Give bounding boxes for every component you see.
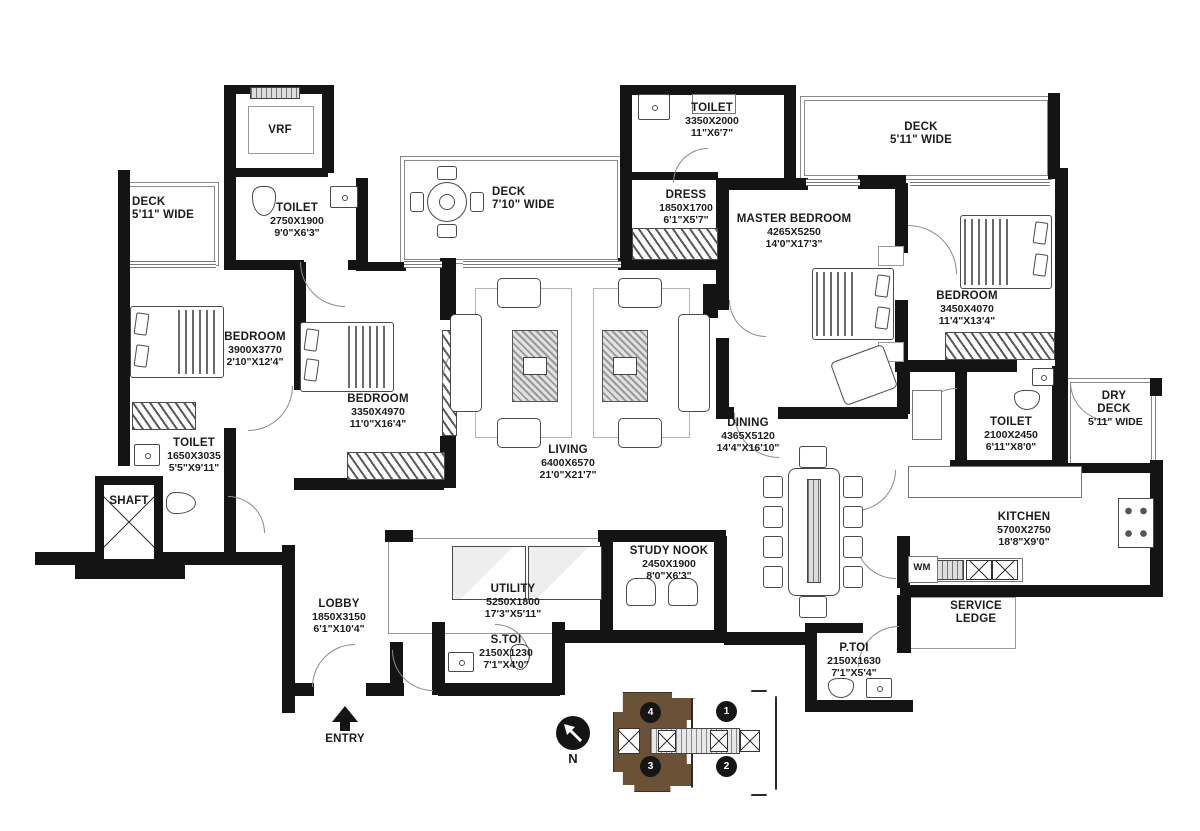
wall [620,85,632,267]
room-name: LIVING [540,444,597,457]
wall [784,85,796,180]
room-label-toilet-bottom-left: TOILET 1650X3035 5'5"X9'11" [167,437,221,474]
room-label-shaft: SHAFT [109,495,148,508]
armchair-icon [497,418,541,448]
room-label-study-nook: STUDY NOOK 2450X1900 8'0"X6'3" [630,545,708,582]
room-name: BEDROOM [224,331,285,344]
door-arc [729,300,766,337]
deck-left-area [122,182,219,266]
room-size: 17'3"X5'11" [485,608,541,620]
room-label-dining: DINING 4365X5120 14'4"X16'10" [717,417,780,454]
study-chair-icon [626,578,656,606]
room-size: 1850X3150 [312,611,366,623]
armchair-icon [618,278,662,308]
north-label: N [568,752,578,765]
wall [282,683,314,696]
wardrobe-icon [347,452,445,480]
room-size: 2'10"X12'4" [224,356,285,368]
bed-icon [960,215,1052,289]
nightstand [878,246,904,266]
room-name: SERVICE LEDGE [943,600,1009,626]
dining-chair-icon [763,476,783,498]
room-label-p-toi: P.TOI 2150X1630 7'1"X5'4" [827,642,881,679]
dining-chair-icon [843,536,863,558]
rug-icon [602,330,648,402]
bed-icon [130,306,224,378]
room-name: P.TOI [827,642,881,655]
wall [322,85,334,173]
room-label-wm: WM [913,561,930,574]
wall [714,536,727,642]
room-label-toilet-right: TOILET 2100X2450 6'11"X8'0" [984,416,1038,453]
room-name: UTILITY [485,583,541,596]
bed-icon [812,268,894,340]
room-name: DECK [132,196,194,209]
room-size: 1850X1700 [659,202,713,214]
room-size: 6'11"X8'0" [984,441,1038,453]
study-chair-icon [668,578,698,606]
north-arrow-icon [556,716,590,750]
sink-icon [638,94,670,120]
wall [805,623,863,633]
room-size: 3450X4070 [936,303,997,315]
deck-chair-icon [410,192,424,212]
entry-label: ENTRY [325,733,365,746]
toilet-icon [828,678,854,698]
north-text: N [568,752,578,765]
key-plan-unit-2: 2 [716,756,737,777]
sink-icon [1032,368,1054,386]
wall [118,170,130,466]
room-size: 5700X2750 [997,524,1051,536]
room-label-bedroom-left: BEDROOM 3900X3770 2'10"X12'4" [224,331,285,368]
armchair-icon [618,418,662,448]
room-name: BEDROOM [347,393,408,406]
wall [1052,366,1068,466]
unit-number: 4 [648,707,654,718]
room-size: 2450X1900 [630,558,708,570]
dining-chair-icon [843,566,863,588]
room-size: 21'0"X21'7" [540,469,597,481]
sofa-icon [678,314,710,412]
wall [598,530,726,542]
key-plan-lift-icon [740,730,760,752]
entry-arrow-icon [332,706,358,722]
dining-chair-icon [799,446,827,468]
sink-icon [448,652,474,672]
wardrobe-icon [945,332,1055,360]
door-arc [673,148,708,183]
wall [224,260,304,270]
deck-chair-icon [470,192,484,212]
wall [897,372,910,414]
key-plan-lift-icon [710,730,728,752]
wall [895,183,908,253]
toilet-icon [1014,390,1040,410]
room-size: 3900X3770 [224,344,285,356]
sink-icon [966,560,992,580]
room-size: 5'11" WIDE [890,134,952,147]
room-label-living: LIVING 6400X6570 21'0"X21'7" [540,444,597,481]
room-size: 5'11" WIDE [1088,416,1140,428]
sink-icon [992,560,1018,580]
wall [1150,378,1162,396]
room-size: 8'0"X6'3" [630,570,708,582]
door-arc [312,644,355,687]
bed-icon [300,322,394,392]
room-name: LOBBY [312,598,366,611]
dining-chair-icon [763,506,783,528]
room-label-toilet-top: TOILET 3350X2000 11"X6'7" [685,102,739,139]
key-plan-unit-3: 3 [640,756,661,777]
room-label-kitchen: KITCHEN 5700X2750 18'8"X9'0" [997,511,1051,548]
room-name: STUDY NOOK [630,545,708,558]
room-size: 4365X5120 [717,430,780,442]
room-size: 18'8"X9'0" [997,536,1051,548]
room-name: DECK [492,186,555,199]
key-plan: 4 1 3 2 [606,686,776,798]
shaft-box [95,476,163,568]
room-label-bedroom-mid: BEDROOM 3350X4970 11'0"X16'4" [347,393,408,430]
room-label-deck-right: DECK 5'11" WIDE [890,121,952,147]
room-name: DECK [890,121,952,134]
wall [224,85,236,270]
sink-icon [134,444,160,466]
room-size: 7'10" WIDE [492,199,555,212]
room-size: 9'0"X6'3" [270,227,324,239]
room-size: 11'0"X16'4" [347,418,408,430]
room-label-utility: UTILITY 5250X1800 17'3"X5'11" [485,583,541,620]
kitchen-counter [908,466,1082,498]
wall [724,632,816,645]
room-name: MASTER BEDROOM [737,213,852,226]
fridge-icon [912,390,942,440]
room-name: WM [913,561,930,574]
wall [895,360,1017,372]
wall [703,284,718,318]
room-size: 6'1"X10'4" [312,623,366,635]
room-name: DRY DECK [1088,390,1140,416]
door-arc [228,496,265,533]
wall [440,258,456,320]
window [910,179,1050,186]
room-size: 7'1"X4'0" [479,659,533,671]
door-arc [248,386,293,431]
sink-icon [330,186,358,208]
room-name: TOILET [270,202,324,215]
room-name: TOILET [984,416,1038,429]
dining-table-icon [788,468,840,596]
room-size: 11"X6'7" [685,127,739,139]
wall [805,623,817,707]
wall [438,683,560,696]
wall [716,338,729,418]
room-size: 2150X1230 [479,647,533,659]
room-name: S.TOI [479,634,533,647]
room-size: 4265X5250 [737,226,852,238]
room-size: 2100X2450 [984,429,1038,441]
room-size: 3350X4970 [347,406,408,418]
wall [565,630,727,643]
room-label-service-ledge: SERVICE LEDGE [943,600,1009,626]
room-size: 5'5"X9'11" [167,462,221,474]
wall [778,407,908,419]
window [463,261,621,268]
wall [897,595,911,653]
door-arc [908,225,957,274]
room-label-s-toi: S.TOI 2150X1230 7'1"X4'0" [479,634,533,671]
room-size: 2750X1900 [270,215,324,227]
toilet-icon [166,492,196,514]
wall [716,178,808,190]
vrf-grille-icon [250,87,300,99]
wall [232,168,328,177]
room-label-dress: DRESS 1850X1700 6'1"X5'7" [659,189,713,226]
unit-number: 3 [648,761,654,772]
room-label-vrf: VRF [268,124,292,137]
room-size: 6400X6570 [540,457,597,469]
room-name: TOILET [167,437,221,450]
dishwasher-icon [936,560,964,580]
window [130,261,216,268]
wall [385,530,413,542]
key-plan-lift-icon [618,728,640,754]
armchair-icon [497,278,541,308]
key-plan-unit-4: 4 [640,702,661,723]
entry-arrow-stem [340,722,350,731]
room-size: 3350X2000 [685,115,739,127]
room-size: 1650X3035 [167,450,221,462]
room-size: 7'1"X5'4" [827,667,881,679]
room-label-deck-left: DECK 5'11" WIDE [132,196,194,222]
room-size: 5250X1800 [485,596,541,608]
rug-icon [512,330,558,402]
floor-plan: VRF DECK 5'11" WIDE TOILET 2750X1900 9'0… [0,0,1200,831]
entry-text: ENTRY [325,733,365,746]
hob-icon [1118,498,1154,548]
sink-icon [866,678,892,698]
room-label-dry-deck: DRY DECK 5'11" WIDE [1088,390,1140,428]
wall [1055,168,1068,372]
deck-chair-icon [437,224,457,238]
wall [1048,93,1060,179]
window [806,179,860,186]
wardrobe-icon [132,402,196,430]
room-size: 2150X1630 [827,655,881,667]
room-size: 11'4"X13'4" [936,315,997,327]
room-label-toilet-top-left: TOILET 2750X1900 9'0"X6'3" [270,202,324,239]
room-name: TOILET [685,102,739,115]
room-size: 5'11" WIDE [132,209,194,222]
room-name: BEDROOM [936,290,997,303]
unit-number: 1 [724,706,730,717]
room-label-master-bedroom: MASTER BEDROOM 4265X5250 14'0"X17'3" [737,213,852,250]
room-size: 14'0"X17'3" [737,238,852,250]
room-size: 6'1"X5'7" [659,214,713,226]
dining-chair-icon [763,566,783,588]
sofa-icon [450,314,482,412]
deck-table-icon [427,182,467,222]
room-label-lobby: LOBBY 1850X3150 6'1"X10'4" [312,598,366,635]
unit-number: 2 [724,761,730,772]
dining-chair-icon [799,596,827,618]
wall [356,262,406,271]
room-label-deck-center: DECK 7'10" WIDE [492,186,555,212]
room-name: VRF [268,124,292,137]
room-size: 14'4"X16'10" [717,442,780,454]
deck-chair-icon [437,166,457,180]
room-label-bedroom-right: BEDROOM 3450X4070 11'4"X13'4" [936,290,997,327]
room-name: SHAFT [109,495,148,508]
window [404,261,442,268]
door-arc [300,262,345,307]
dining-chair-icon [843,506,863,528]
room-name: DINING [717,417,780,430]
room-name: DRESS [659,189,713,202]
dining-chair-icon [843,476,863,498]
key-plan-unit-1: 1 [716,701,737,722]
dining-chair-icon [763,536,783,558]
wall [900,585,1163,597]
wardrobe-icon [632,228,718,260]
room-name: KITCHEN [997,511,1051,524]
wall [805,700,913,712]
key-plan-lift-icon [658,730,676,752]
